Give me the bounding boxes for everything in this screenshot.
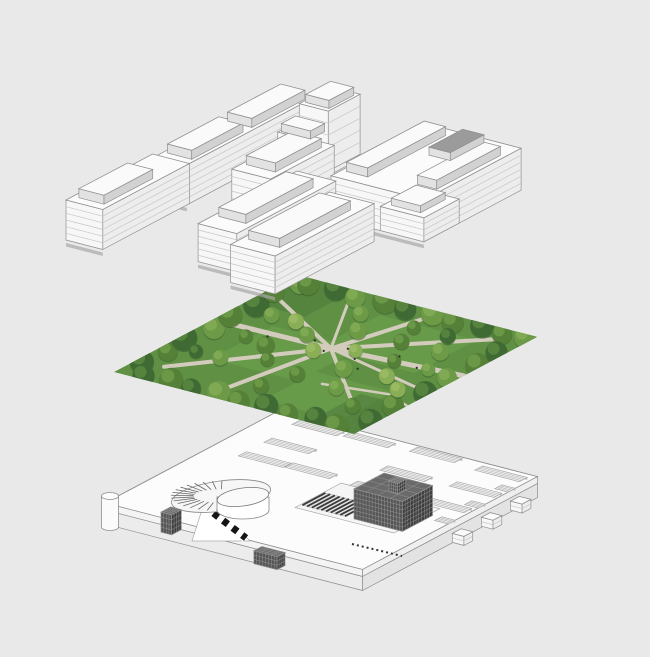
buildings-massing-layer bbox=[66, 81, 521, 300]
architectural-diagram bbox=[0, 0, 650, 657]
park-aerial-photo-layer bbox=[114, 273, 537, 439]
exploded-axonometric-view bbox=[0, 0, 650, 657]
